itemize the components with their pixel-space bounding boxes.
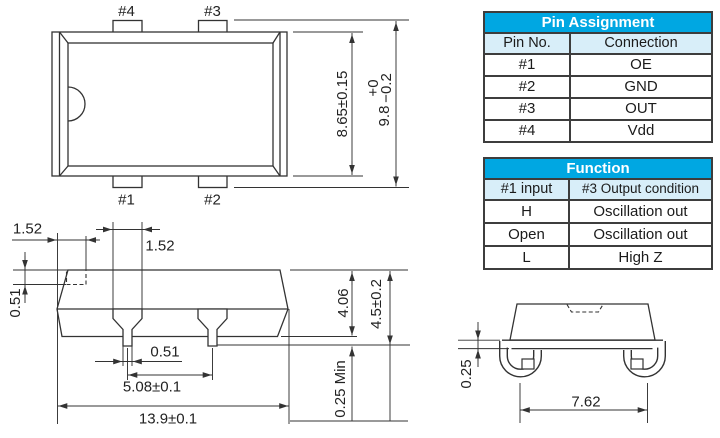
end-view-body [510,304,655,340]
dim-overall-height-label: 9.8 [376,106,393,127]
dim-standoff-label: 0.25 Min [332,360,349,418]
pin-number: #2 [484,76,570,98]
dim-lead-thickness-label: 0.25 [458,359,475,388]
function-table: Function #1 input #3 Output condition H … [483,157,713,270]
pin-connection: GND [570,76,712,98]
dim-lead-width-label: 0.51 [150,344,179,361]
pin-row-3: #3 OUT [484,98,712,120]
dim-overall-height-lower-tol: −0.2 [378,73,395,103]
pin-assignment-table: Pin Assignment Pin No. Connection #1 OE … [483,11,713,143]
pin-connection: OUT [570,98,712,120]
pad-1-label: #1 [118,192,135,209]
top-view [52,21,287,188]
pin-row-2: #2 GND [484,76,712,98]
dim-side-body-height-label: 4.06 [335,288,352,317]
function-input: L [484,246,569,269]
pad-4-label: #4 [118,3,135,20]
pin-number: #1 [484,54,570,76]
dim-overall-length-label: 13.9±0.1 [139,411,197,428]
pin-table-col-connection: Connection [570,33,712,54]
side-view-body [57,270,288,337]
pad-3 [199,21,228,33]
function-input: H [484,200,569,223]
top-view-body-outline [52,32,287,176]
function-row-1: H Oscillation out [484,200,712,223]
end-view [502,304,663,373]
dim-end-to-pad-label: 1.52 [13,221,42,238]
pin-row-1: #1 OE [484,54,712,76]
function-output: Oscillation out [569,200,712,223]
pad-1 [113,176,142,188]
pin-number: #3 [484,98,570,120]
dim-pad-thickness-label: 0.51 [7,288,24,317]
dim-pad-width-label: 1.52 [145,238,174,255]
function-title: Function [484,158,712,179]
pin-connection: Vdd [570,120,712,142]
dim-body-height-label: 8.65±0.15 [334,71,351,138]
pin-connection: OE [570,54,712,76]
lead-tip-left [522,359,534,369]
pad-3-label: #3 [204,3,221,20]
package-drawing-page: #4 #3 #1 #2 8.65±0.15 9.8 +0 −0.2 [0,0,720,438]
side-view [57,270,288,346]
function-row-2: Open Oscillation out [484,223,712,246]
pad-2-label: #2 [204,192,221,209]
pin-table-col-pin-no: Pin No. [484,33,570,54]
function-output: Oscillation out [569,223,712,246]
function-col-output: #3 Output condition [569,179,712,200]
dim-lead-pitch-label: 5.08±0.1 [123,379,181,396]
pad-2 [199,176,228,188]
function-row-3: L High Z [484,246,712,269]
function-output: High Z [569,246,712,269]
pin-assignment-title: Pin Assignment [484,12,712,33]
function-col-input: #1 input [484,179,569,200]
dim-side-overall-height-label: 4.5±0.2 [368,279,385,329]
dim-lead-span-label: 7.62 [571,394,600,411]
lead-tip-right [631,359,643,369]
function-input: Open [484,223,569,246]
pad-4 [113,21,142,33]
pin-row-4: #4 Vdd [484,120,712,142]
pin-number: #4 [484,120,570,142]
